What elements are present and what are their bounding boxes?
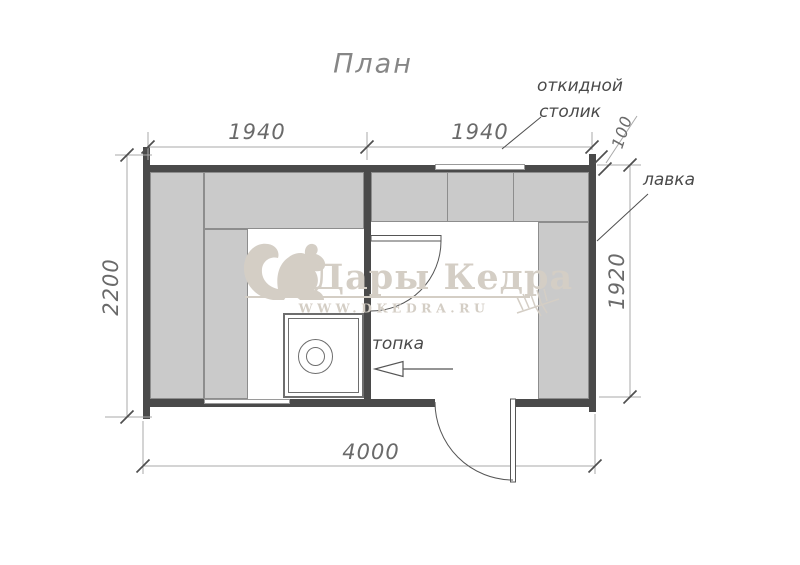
annotation-folding-table-line2: столик	[539, 102, 601, 122]
dimension-label-top-right: 1940	[451, 120, 508, 144]
entry-door-swing-arc	[435, 402, 513, 480]
annotation-bench: лавка	[643, 170, 695, 190]
interior-door-leaf	[371, 236, 441, 242]
page-title: План	[333, 49, 413, 80]
watermark-website: WWW.DKEDRA.RU	[299, 301, 490, 316]
furnace-arrow-head	[375, 362, 403, 377]
dimension-label-left: 2200	[99, 258, 123, 315]
dimension-label-top-left: 1940	[228, 120, 285, 144]
dimension-label-bottom: 4000	[342, 440, 399, 464]
dim-tick-icon	[595, 151, 608, 164]
watermark-brand: Дары Кедра	[313, 257, 573, 298]
entry-door-leaf	[511, 399, 516, 482]
furnace-arrow-icon	[375, 362, 453, 377]
floor-plan: Дары Кедра WWW.DKEDRA.RU План 1940 1940 …	[0, 0, 800, 565]
dimension-label-right: 1920	[605, 252, 629, 309]
watermark-underline	[245, 296, 530, 298]
bench-leader	[597, 194, 648, 241]
annotation-folding-table-line1: откидной	[537, 76, 623, 96]
dim-tick-icon	[599, 163, 612, 176]
annotation-furnace: топка	[372, 334, 424, 354]
